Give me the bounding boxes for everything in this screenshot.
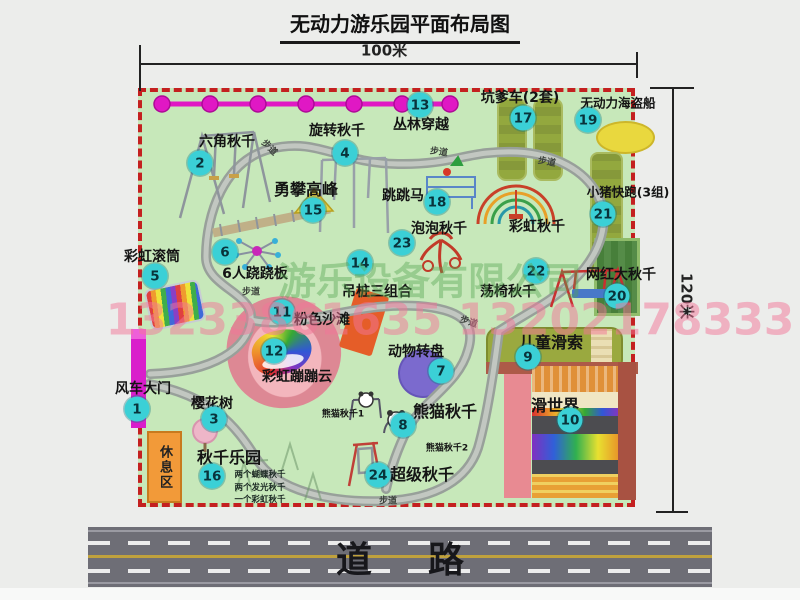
label-kart: 坑爹车(2套) [481, 87, 560, 107]
label-windmill-gate: 风车大门 [115, 378, 171, 398]
label-panda-swing-2: 熊猫秋千2 [426, 441, 468, 454]
badge-17: 17 [511, 106, 536, 131]
badge-3: 3 [202, 407, 227, 432]
label-panda-swing: 熊猫秋千 [413, 398, 477, 422]
badge-21: 21 [591, 202, 616, 227]
badge-13: 13 [408, 93, 433, 118]
road-label: 道路 [280, 531, 520, 583]
dim-tick-top-right [636, 52, 638, 78]
walkway-label-2: 步道 [429, 143, 449, 158]
dim-label-width: 100米 [361, 40, 407, 61]
dim-tick-top-left [139, 45, 141, 91]
label-rainbow-swing: 彩虹秋千 [509, 216, 565, 236]
label-bubble-swing: 泡泡秋千 [411, 218, 467, 238]
label-panda-swing-1: 熊猫秋千1 [322, 407, 364, 420]
road: 道路 [88, 527, 712, 587]
badge-2: 2 [188, 151, 213, 176]
badge-15: 15 [301, 198, 326, 223]
badge-9: 9 [516, 345, 541, 370]
swing-note-3: 一个彩虹秋千 [234, 493, 285, 505]
badge-6: 6 [213, 240, 238, 265]
slide-world-pink-strip [504, 374, 531, 498]
label-rotating-swing: 旋转秋千 [309, 120, 365, 140]
badge-18: 18 [425, 190, 450, 215]
slide-band-dark-2 [532, 460, 620, 474]
label-hexagon-swing: 六角秋千 [199, 131, 255, 151]
dim-tick-right-bottom [656, 511, 688, 513]
label-super-swing: 超级秋千 [390, 461, 454, 485]
below-road-strip [0, 588, 800, 600]
slide-band-rainbow [532, 434, 620, 460]
walkway-label-6: 步道 [379, 494, 397, 507]
badge-5: 5 [143, 264, 168, 289]
label-big-swing: 网红大秋千 [586, 264, 656, 284]
label-rainbow-bounce-cloud: 彩虹蹦蹦云 [262, 366, 332, 386]
swing-note-1: 两个蝴蝶秋千 [234, 468, 285, 480]
badge-16: 16 [200, 464, 225, 489]
badge-8: 8 [391, 413, 416, 438]
slide-world-slides [532, 366, 620, 498]
dim-line-top [140, 63, 637, 65]
badge-10: 10 [558, 408, 583, 433]
badge-7: 7 [429, 359, 454, 384]
badge-1: 1 [125, 397, 150, 422]
label-pig-run: 小猪快跑(3组) [587, 182, 670, 201]
pirate-ship [596, 121, 655, 154]
badge-19: 19 [576, 108, 601, 133]
rest-area-box: 休息区 [147, 431, 182, 503]
slide-band-orange [532, 366, 620, 392]
slide-world-right-bar [618, 362, 636, 500]
badge-24: 24 [366, 463, 391, 488]
rest-area-label: 休息区 [155, 445, 174, 490]
swing-note-2: 两个发光秋千 [234, 481, 285, 493]
dim-tick-right-top [650, 87, 694, 89]
screenshot-root: { "title": "无动力游乐园平面布局图", "dimensions": … [0, 0, 800, 600]
label-jumping-horse: 跳跳马 [382, 185, 424, 205]
badge-4: 4 [333, 141, 358, 166]
label-climbing-peak: 勇攀高峰 [274, 176, 338, 200]
watermark-phone: 13233861635 13202178333 [106, 295, 795, 346]
slide-band-wavy [532, 474, 620, 498]
kart-track-2 [533, 98, 563, 181]
